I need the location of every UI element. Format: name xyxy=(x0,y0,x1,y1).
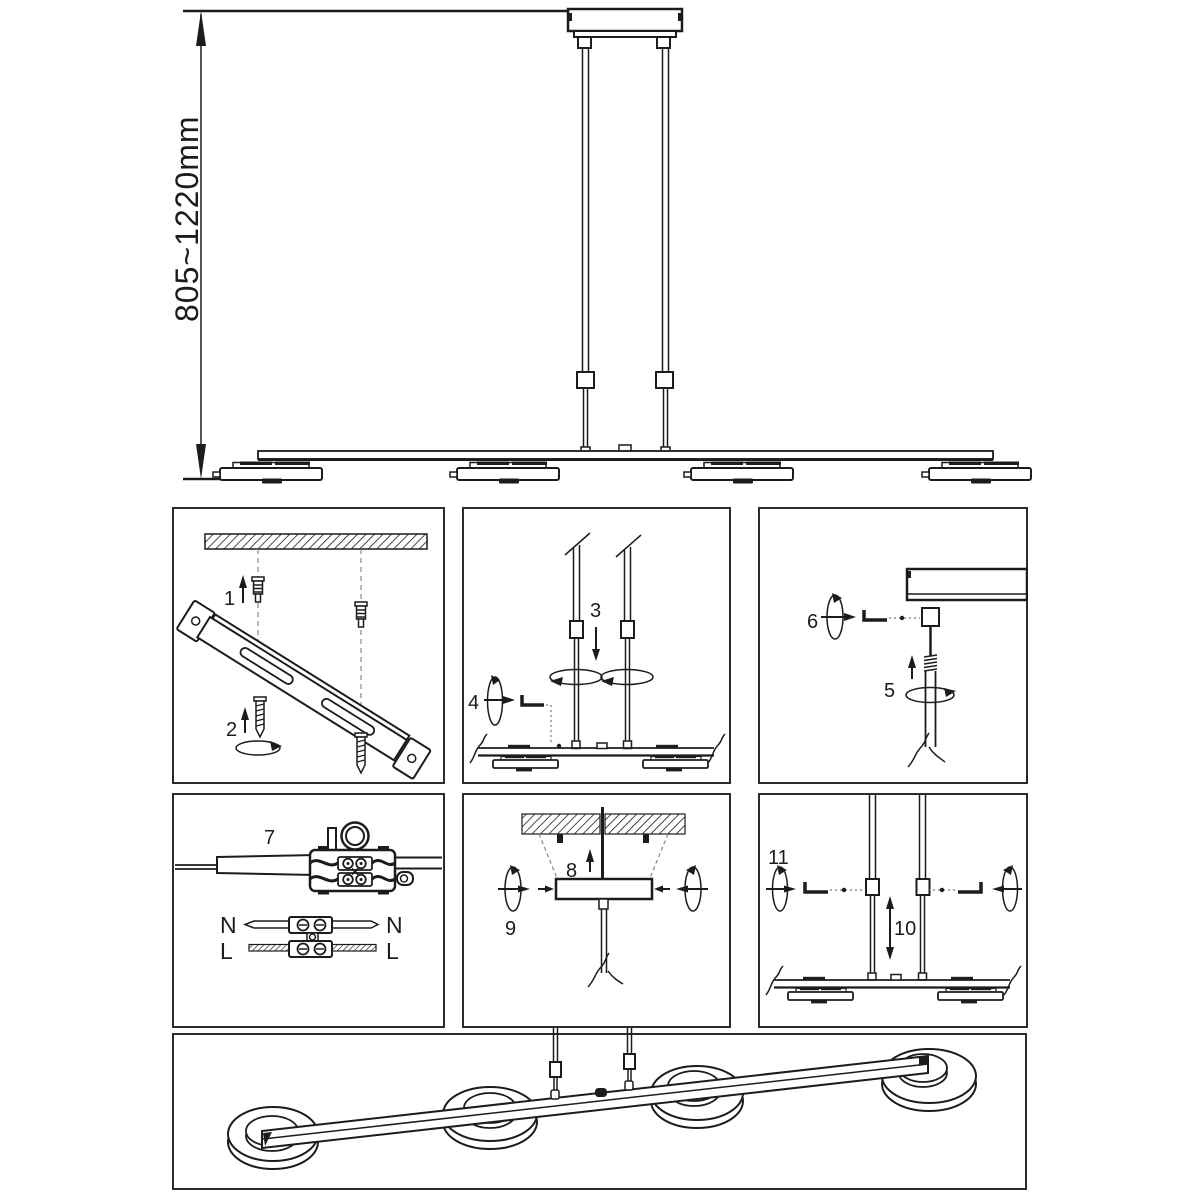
panel-step-1-2-bracket: 1 2 xyxy=(172,507,445,784)
telescopic-connector xyxy=(570,621,583,638)
ceiling-hook xyxy=(643,834,649,843)
step-label-6: 6 xyxy=(807,611,818,633)
telescopic-connector xyxy=(621,621,634,638)
cable-grommet xyxy=(595,1088,607,1097)
panel-step-10-11-height: 11 10 xyxy=(758,793,1028,1028)
telescopic-connector xyxy=(917,879,930,895)
step-label-7: 7 xyxy=(264,827,275,849)
ceiling-canopy xyxy=(568,9,682,48)
step-label-1: 1 xyxy=(224,588,235,610)
terminal-link xyxy=(307,933,318,941)
overview-figure: 805~1220mm xyxy=(0,0,1200,507)
installation-instruction-sheet: 805~1220mm xyxy=(0,0,1200,1200)
telescopic-connector xyxy=(624,1054,635,1069)
ceiling-hook xyxy=(557,834,563,843)
step-label-5: 5 xyxy=(884,680,895,702)
lamp-head xyxy=(450,462,559,484)
telescopic-connector xyxy=(577,372,594,388)
ceiling-hatch xyxy=(205,534,427,549)
panel-step-8-9-canopy: 8 9 xyxy=(462,793,731,1028)
step-label-10: 10 xyxy=(894,918,916,940)
step-label-4: 4 xyxy=(468,692,479,714)
step-label-3: 3 xyxy=(590,600,601,622)
ceiling-canopy xyxy=(556,879,652,899)
wire-label-n-right: N xyxy=(386,912,403,938)
step-label-8: 8 xyxy=(566,860,577,882)
lamp-head xyxy=(213,462,322,484)
step-label-11: 11 xyxy=(768,847,789,869)
panel-perspective-view xyxy=(172,1028,1028,1190)
wire-label-l-left: L xyxy=(220,938,233,964)
dimension-label: 805~1220mm xyxy=(169,115,205,322)
telescopic-connector xyxy=(866,879,879,895)
panel-step-5-6-canopy-rod: 5 6 xyxy=(758,507,1028,784)
lamp-bar xyxy=(258,445,993,460)
suspension-rod-left xyxy=(577,48,594,454)
set-screw-dot xyxy=(900,616,904,620)
ceiling-hatch xyxy=(605,814,685,834)
telescopic-connector xyxy=(656,372,673,388)
telescopic-connector xyxy=(550,1062,561,1077)
panel-step-7-wiring: 7 N N L L xyxy=(172,793,445,1028)
rod-socket xyxy=(922,608,939,626)
wire-label-l-right: L xyxy=(386,938,399,964)
lamp-head xyxy=(922,462,1031,484)
wire-label-n-left: N xyxy=(220,912,237,938)
step-label-9: 9 xyxy=(505,918,516,940)
lamp-head xyxy=(684,462,793,484)
panel-step-3-4-rods: 3 4 xyxy=(462,507,731,784)
suspension-rod-right xyxy=(656,48,673,454)
set-screw-dot xyxy=(940,888,944,892)
set-screw-dot xyxy=(842,888,846,892)
step-label-2: 2 xyxy=(226,719,237,741)
ceiling-hatch xyxy=(522,814,600,834)
